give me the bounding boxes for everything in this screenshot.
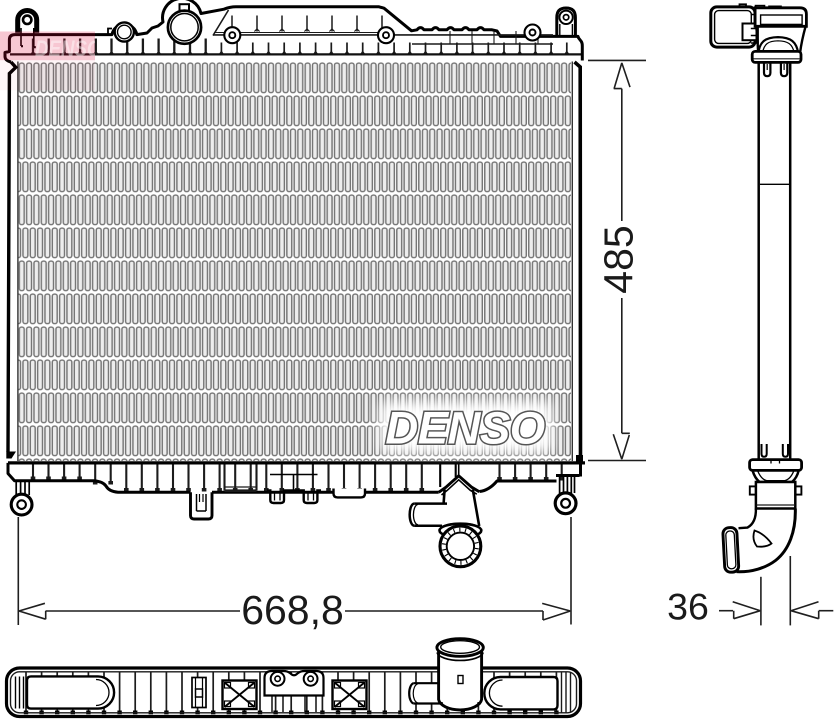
svg-text:DENSO: DENSO	[385, 403, 544, 454]
svg-text:36: 36	[667, 586, 709, 628]
svg-text:485: 485	[596, 225, 642, 293]
svg-text:668,8: 668,8	[241, 587, 344, 633]
svg-text:DENSO: DENSO	[35, 38, 102, 62]
